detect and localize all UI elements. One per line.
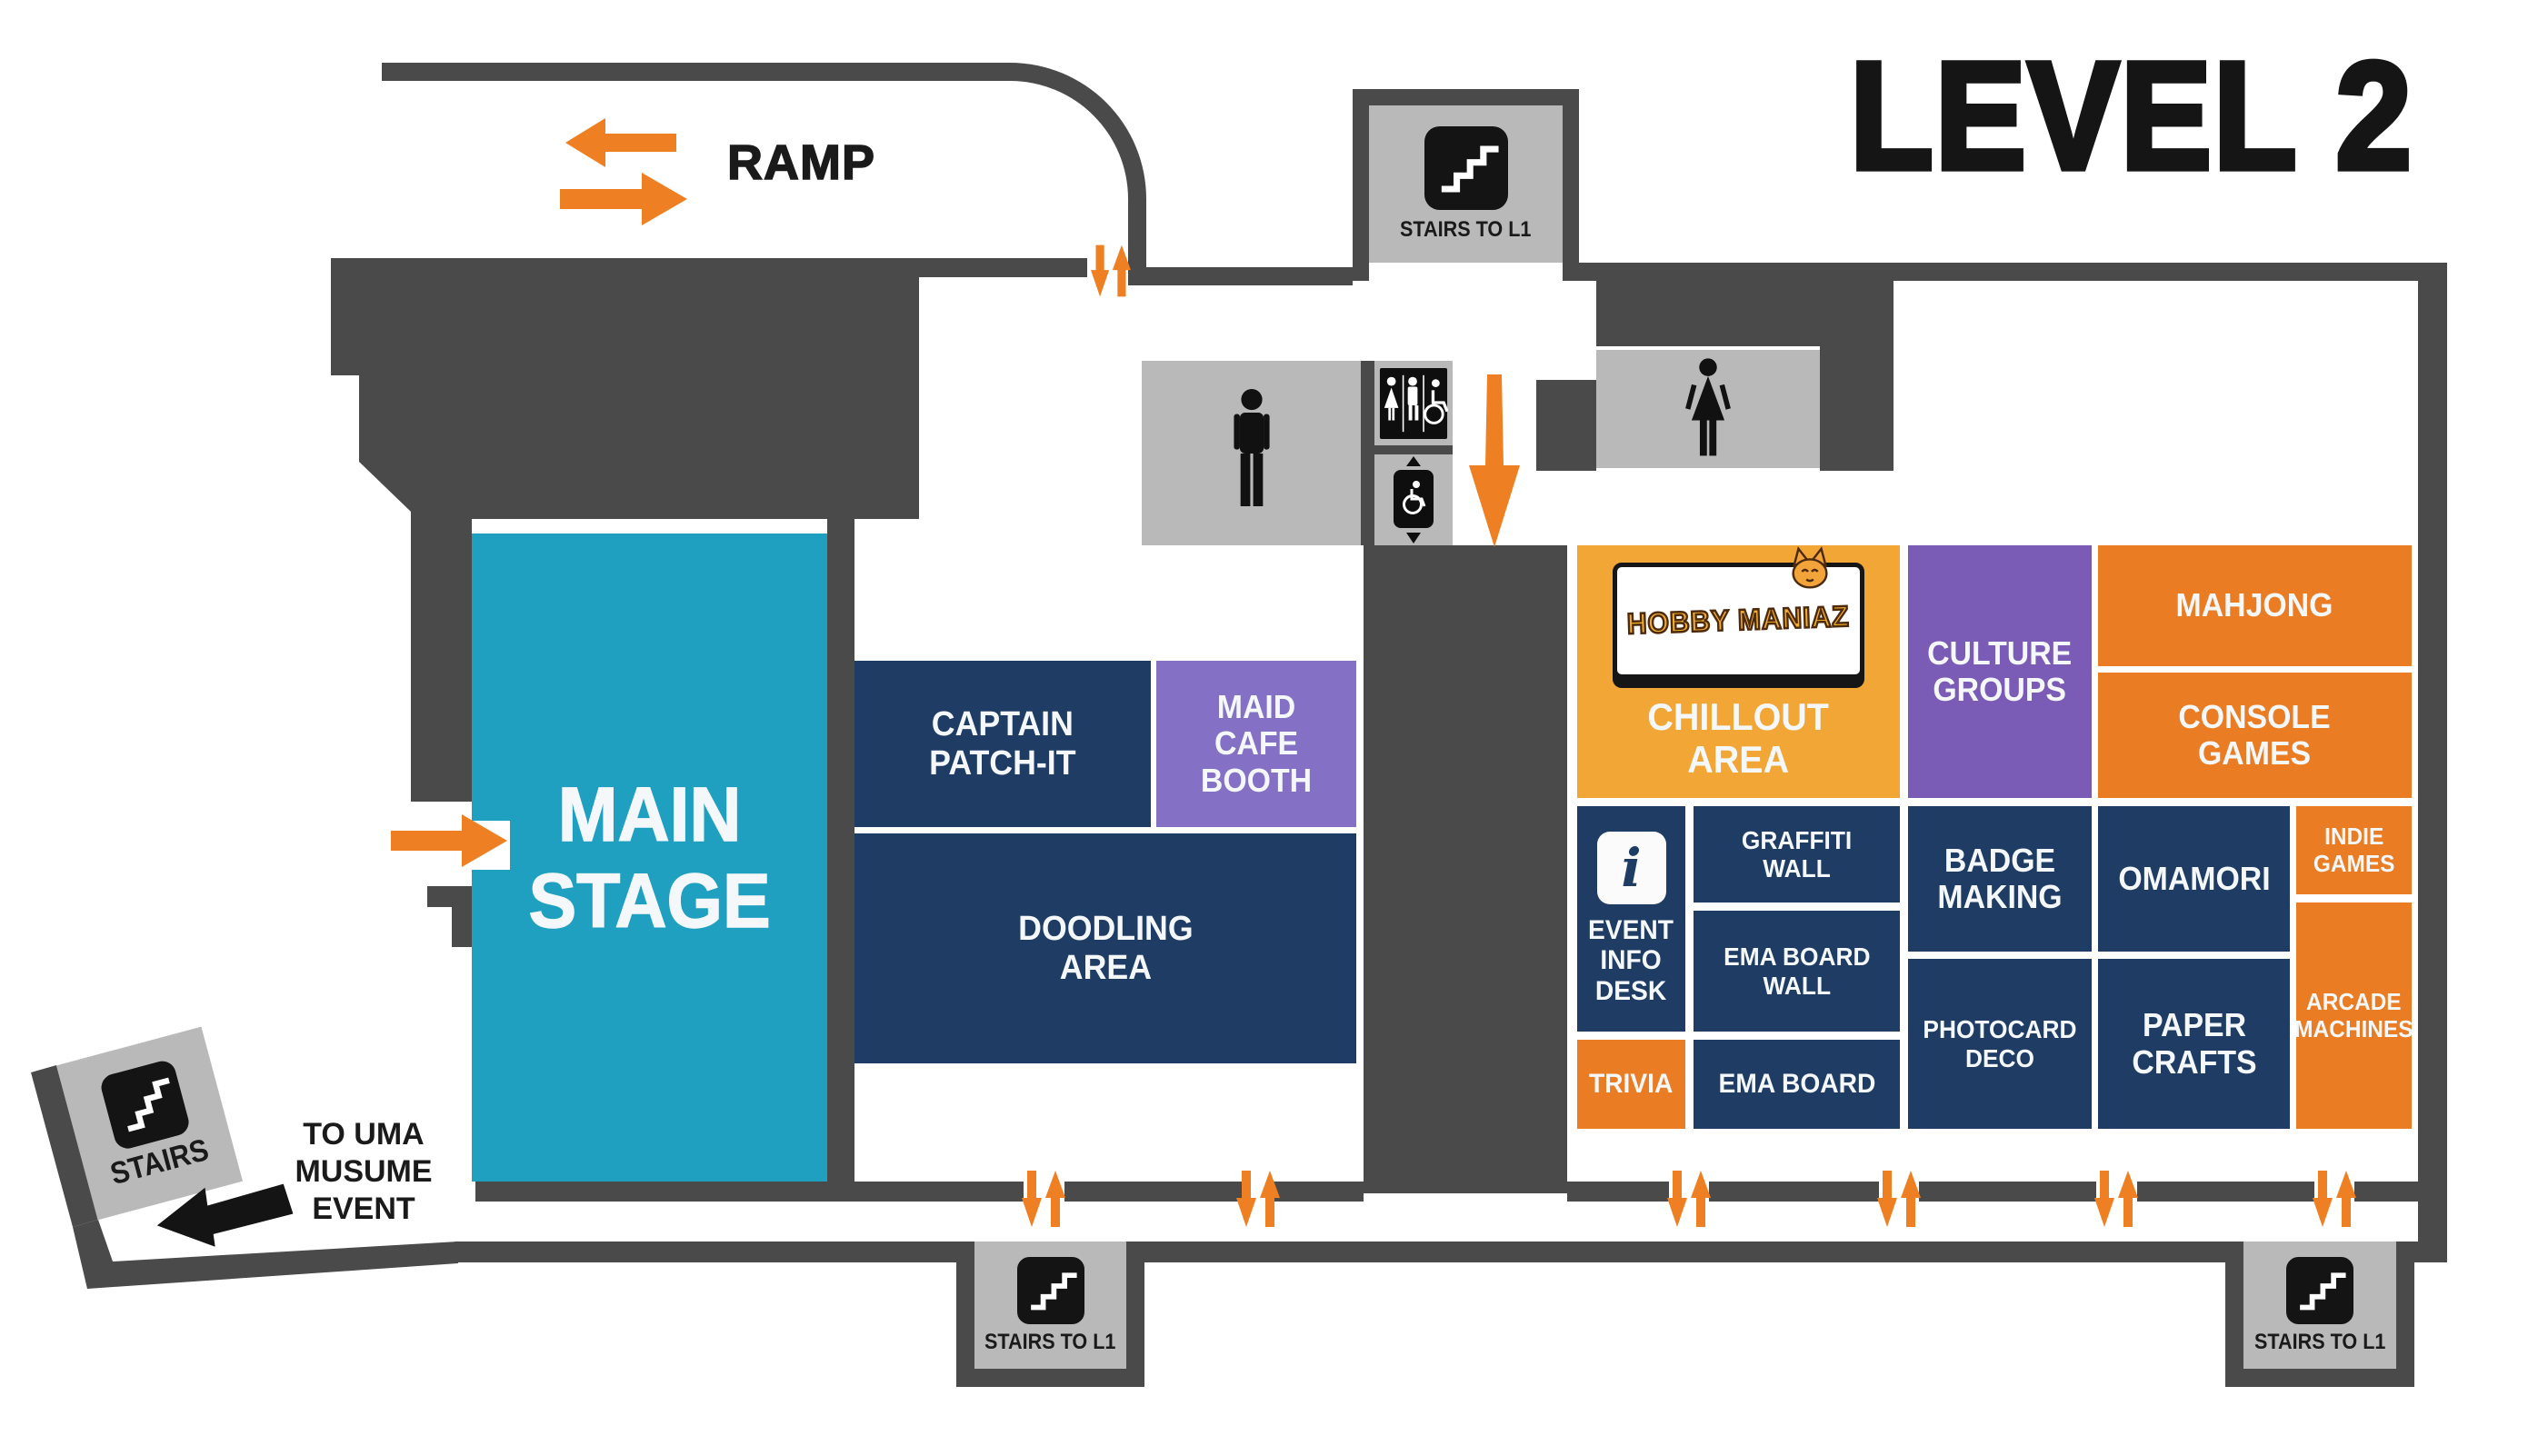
male-icon [1225, 377, 1278, 530]
badge-making-label: BADGE MAKING [1937, 843, 2062, 916]
lift-box [1374, 454, 1453, 545]
wall-inner-seg6 [1919, 1182, 2096, 1202]
zone-paper-crafts: PAPER CRAFTS [2098, 959, 2290, 1129]
graffiti-wall-label: GRAFFITI WALL [1742, 826, 1852, 883]
doorway-arrows-icon [2313, 1171, 2356, 1227]
zone-culture-groups: CULTURE GROUPS [1908, 545, 2092, 798]
wall-inner-seg2 [1064, 1182, 1242, 1202]
wall-inner-seg7 [2137, 1182, 2314, 1202]
womens-restroom [1596, 350, 1820, 468]
ema-board-wall-label: EMA BOARD WALL [1724, 942, 1870, 1000]
zone-badge-making: BADGE MAKING [1908, 806, 2092, 952]
stairs-bottom-center-group: STAIRS TO L1 [974, 1243, 1126, 1369]
doodling-area-label: DOODLING AREA [1018, 910, 1193, 987]
zone-indie-games: INDIE GAMES [2296, 806, 2412, 894]
photocard-deco-label: PHOTOCARD DECO [1923, 1015, 2076, 1072]
console-games-label: CONSOLE GAMES [2179, 699, 2331, 773]
wall-outer-seg3 [2414, 1242, 2447, 1262]
stairs-top-group: STAIRS TO L1 [1369, 105, 1563, 263]
paper-crafts-label: PAPER CRAFTS [2132, 1007, 2256, 1081]
accessible-sign-box [1374, 361, 1453, 445]
stairs-bottom-center-label: STAIRS TO L1 [984, 1330, 1115, 1355]
zone-mahjong: MAHJONG [2098, 545, 2412, 666]
stairs-bottom-right-group: STAIRS TO L1 [2243, 1243, 2396, 1369]
zone-main-stage: MAIN STAGE [472, 534, 827, 1182]
accessible-restroom-sign [1379, 368, 1448, 439]
wall-central-block [1364, 545, 1567, 1193]
event-info-desk-label: EVENT INFO DESK [1588, 915, 1674, 1007]
captain-patch-it-label: CAPTAIN PATCH-IT [929, 705, 1075, 783]
brand-label: HOBBY MANIAZ [1627, 600, 1851, 642]
corridor-down-arrow-icon [1469, 374, 1520, 547]
mens-restroom [1142, 361, 1361, 545]
doorway-arrows-icon [1091, 243, 1131, 299]
zone-chillout-area: HOBBY MANIAZ CHILLOUT AREA [1577, 545, 1900, 798]
wall-right-of-womens [1820, 346, 1894, 471]
stairs-br-border-right [2396, 1242, 2414, 1387]
wall-above-womens [1596, 263, 1894, 346]
elevator-icon [1393, 456, 1434, 544]
omamori-label: OMAMORI [2118, 861, 2270, 897]
doorway-arrows-icon [1667, 1171, 1711, 1227]
hobby-maniaz-logo: HOBBY MANIAZ [1613, 563, 1864, 679]
stairs-bc-border-left [956, 1242, 974, 1387]
wall-inner-seg3 [1274, 1182, 1364, 1202]
stairs-br-border-bottom [2225, 1369, 2414, 1387]
maid-cafe-booth-label: MAID CAFE BOOTH [1201, 689, 1312, 799]
doorway-arrows-icon [2094, 1171, 2138, 1227]
zone-maid-cafe-booth: MAID CAFE BOOTH [1156, 661, 1356, 827]
floor-plan-level2: { "title": "LEVEL 2", "navigation": { "r… [0, 0, 2528, 1456]
stairs-icon [97, 1058, 191, 1152]
wall-inner-seg5 [1709, 1182, 1879, 1202]
zone-graffiti-wall: GRAFFITI WALL [1694, 806, 1900, 903]
zone-photocard-deco: PHOTOCARD DECO [1908, 959, 2092, 1129]
zone-captain-patch-it: CAPTAIN PATCH-IT [854, 661, 1151, 827]
stairs-top-label: STAIRS TO L1 [1400, 217, 1531, 243]
wall-corridor-bottom-left [1146, 267, 1353, 285]
ramp-arrow-right-icon [560, 173, 687, 225]
mahjong-label: MAHJONG [2176, 587, 2333, 623]
stairs-icon [1424, 126, 1508, 210]
zone-console-games: CONSOLE GAMES [2098, 673, 2412, 798]
ema-board-label: EMA BOARD [1718, 1069, 1875, 1100]
zone-doodling-area: DOODLING AREA [854, 833, 1356, 1063]
chillout-area-label: CHILLOUT AREA [1648, 695, 1830, 781]
wall-inner-seg4 [1567, 1182, 1669, 1202]
doorway-arrows-icon [1877, 1171, 1921, 1227]
zone-arcade-machines: ARCADE MACHINES [2296, 903, 2412, 1129]
stairs-bottom-right-label: STAIRS TO L1 [2254, 1330, 2385, 1355]
arcade-machines-label: ARCADE MACHINES [2294, 989, 2413, 1042]
wall-sign-underbar [1374, 445, 1453, 454]
zone-ema-board-wall: EMA BOARD WALL [1694, 911, 1900, 1032]
female-icon [1680, 357, 1736, 461]
cat-mascot-icon [1784, 545, 1836, 594]
stairs-br-border-left [2225, 1242, 2243, 1387]
wall-stage-booth-divider [827, 519, 854, 1200]
stairs-top-border-top [1353, 89, 1579, 105]
zone-ema-board: EMA BOARD [1694, 1040, 1900, 1129]
page-title: LEVEL 2 [1827, 39, 2436, 192]
stairs-top-border-left [1353, 89, 1369, 281]
ramp-arrow-left-icon [565, 118, 676, 167]
zone-event-info-desk: i EVENT INFO DESK [1577, 806, 1685, 1032]
indie-games-label: INDIE GAMES [2313, 823, 2395, 876]
zone-omamori: OMAMORI [2098, 806, 2290, 952]
zone-trivia: TRIVIA [1577, 1040, 1685, 1129]
doorway-arrows-icon [1022, 1171, 1065, 1227]
wall-mens-divider [1361, 361, 1374, 545]
stairs-icon [2286, 1257, 2353, 1324]
stairs-icon [1017, 1257, 1084, 1324]
wall-inner-seg1 [475, 1182, 1024, 1202]
uma-event-label: TO UMA MUSUME EVENT [273, 1116, 455, 1227]
wall-right-outer [2418, 263, 2447, 1262]
stairs-bc-border-bottom [956, 1369, 1144, 1387]
wall-left-of-womens [1536, 380, 1596, 471]
ramp-label: RAMP [727, 135, 875, 191]
stairs-bc-border-right [1126, 1242, 1144, 1387]
wall-outer-seg1 [455, 1242, 956, 1262]
wall-inner-seg8 [2354, 1182, 2418, 1202]
doorway-arrows-icon [1236, 1171, 1280, 1227]
stairs-top-border-right [1563, 89, 1579, 281]
culture-groups-label: CULTURE GROUPS [1927, 635, 2072, 709]
info-icon: i [1597, 832, 1666, 904]
trivia-label: TRIVIA [1589, 1069, 1673, 1100]
main-stage-label: MAIN STAGE [528, 772, 770, 942]
wall-outer-seg2 [1144, 1242, 2225, 1262]
